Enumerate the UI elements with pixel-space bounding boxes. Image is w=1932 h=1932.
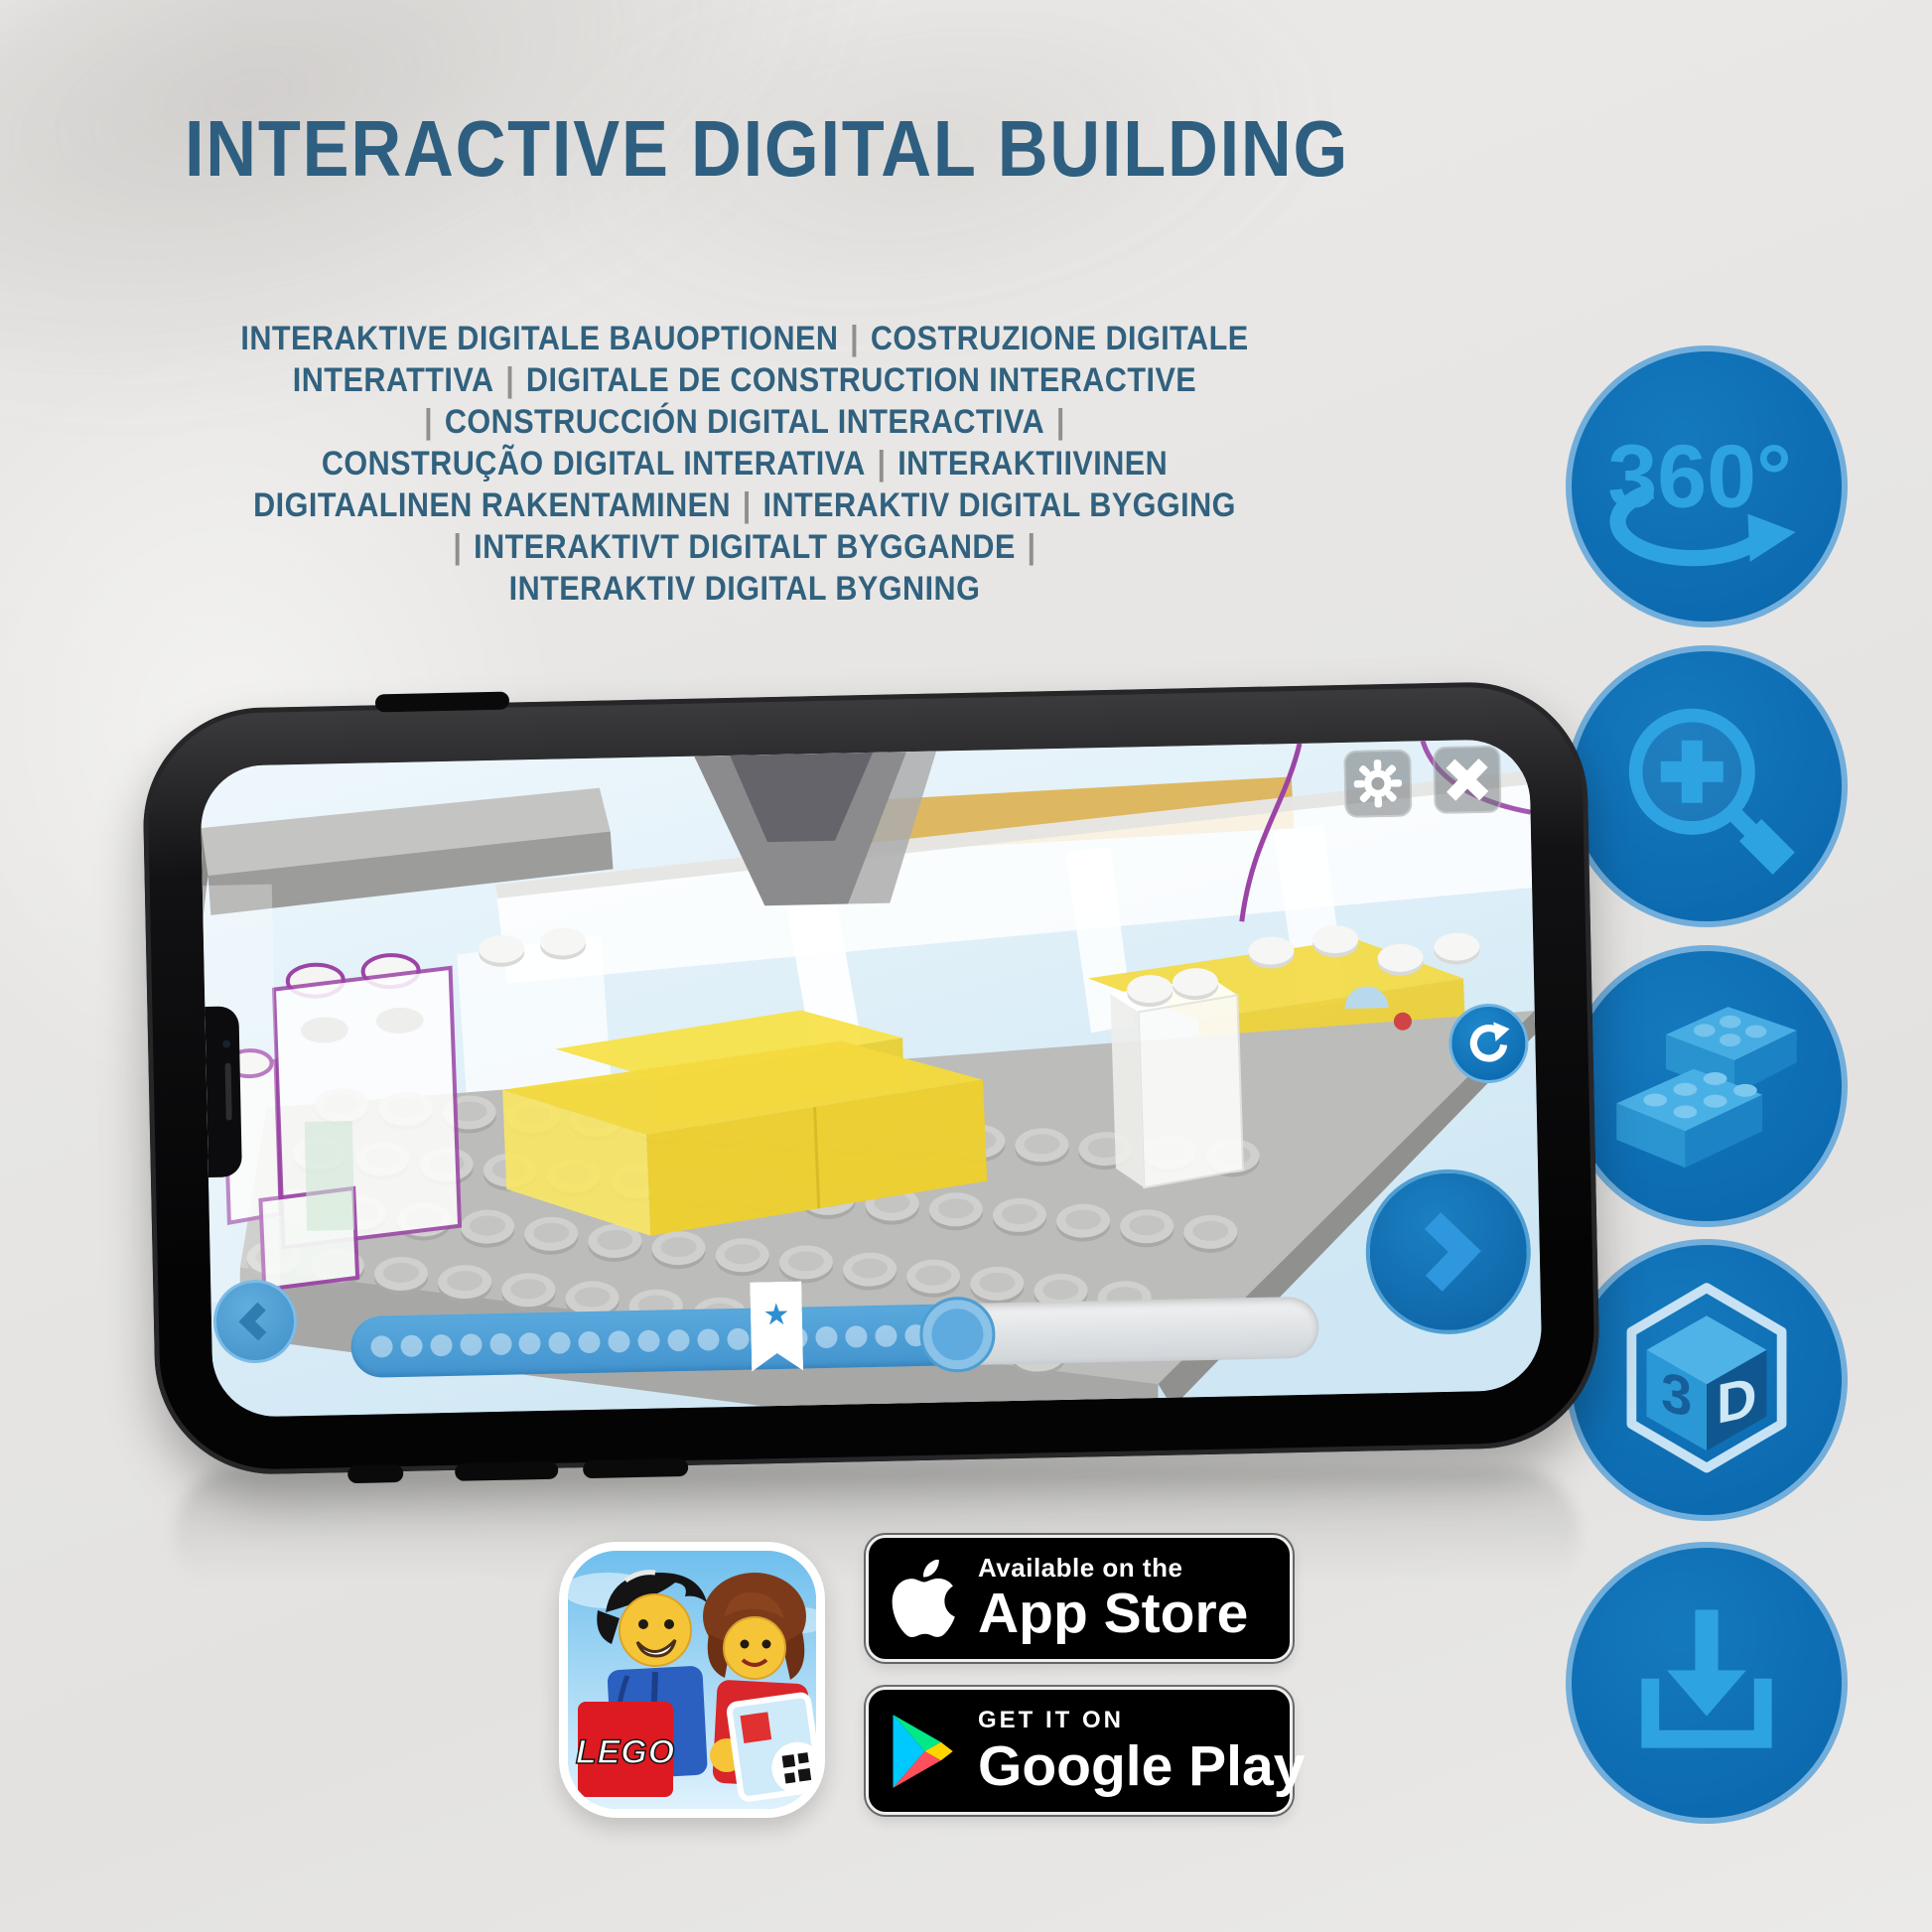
progress-dot bbox=[579, 1331, 601, 1353]
app-store-tagline: Available on the bbox=[978, 1553, 1248, 1583]
lego-logo-text: LEGO bbox=[576, 1733, 675, 1771]
page-title: INTERACTIVE DIGITAL BUILDING bbox=[92, 103, 1443, 195]
language-line: DIGITAALINEN RAKENTAMINEN|INTERAKTIV DIG… bbox=[74, 484, 1415, 526]
feature-bricks bbox=[1566, 945, 1848, 1227]
apple-icon bbox=[869, 1560, 978, 1637]
camera-dot bbox=[222, 1040, 230, 1048]
phone-volume-down-button bbox=[583, 1458, 688, 1478]
phone-volume-up-button bbox=[455, 1461, 558, 1481]
settings-button[interactable] bbox=[1343, 750, 1412, 818]
progress-dot bbox=[845, 1325, 867, 1347]
minifigure-girl bbox=[703, 1573, 816, 1802]
phone: ★ bbox=[141, 680, 1601, 1476]
progress-dot bbox=[400, 1335, 422, 1357]
360-label: 360° bbox=[1607, 428, 1792, 527]
3d-view-icon: 3 D bbox=[1599, 1273, 1814, 1487]
app-store-name: App Store bbox=[978, 1583, 1248, 1644]
language-line: CONSTRUÇÃO DIGITAL INTERATIVA|INTERAKTII… bbox=[74, 443, 1415, 484]
phone-mute-switch bbox=[347, 1464, 403, 1483]
360-rotation-icon: 360° bbox=[1592, 372, 1821, 601]
close-button[interactable] bbox=[1433, 746, 1501, 814]
language-line: INTERATTIVA|DIGITALE DE CONSTRUCTION INT… bbox=[74, 359, 1415, 401]
zoom-in-icon bbox=[1602, 682, 1811, 891]
feature-360-rotation: 360° bbox=[1566, 345, 1848, 627]
progress-dot bbox=[608, 1330, 629, 1352]
phone-screen: ★ bbox=[200, 739, 1542, 1418]
progress-dot bbox=[460, 1333, 482, 1355]
google-play-name: Google Play bbox=[978, 1735, 1305, 1797]
bricks-icon bbox=[1599, 979, 1814, 1193]
chevron-left-icon bbox=[225, 1292, 284, 1350]
page: INTERACTIVE DIGITAL BUILDING INTERAKTIVE… bbox=[0, 0, 1932, 1932]
lego-logo: LEGO bbox=[576, 1702, 675, 1797]
language-list: INTERAKTIVE DIGITALE BAUOPTIONEN|COSTRUZ… bbox=[74, 318, 1415, 610]
speaker-slit bbox=[225, 1063, 232, 1121]
language-line: |INTERAKTIVT DIGITALT BYGGANDE| bbox=[74, 526, 1415, 568]
progress-dot bbox=[637, 1330, 659, 1352]
google-play-badge[interactable]: GET IT ON Google Play bbox=[866, 1687, 1293, 1815]
feature-zoom bbox=[1566, 645, 1848, 927]
phone-notch bbox=[205, 1006, 242, 1177]
3d-left-face-label: 3 bbox=[1661, 1361, 1692, 1430]
progress-dot bbox=[875, 1325, 897, 1347]
progress-dot bbox=[727, 1328, 749, 1350]
progress-dot bbox=[430, 1334, 452, 1356]
progress-slider-handle[interactable] bbox=[919, 1296, 997, 1373]
lego-app-icon[interactable]: LEGO bbox=[559, 1542, 825, 1818]
google-play-tagline: GET IT ON bbox=[978, 1706, 1305, 1735]
progress-dot bbox=[370, 1335, 392, 1357]
progress-dot bbox=[697, 1328, 719, 1350]
language-line: INTERAKTIVE DIGITALE BAUOPTIONEN|COSTRUZ… bbox=[74, 318, 1415, 359]
google-play-icon bbox=[869, 1709, 978, 1794]
3d-right-face-label: D bbox=[1717, 1366, 1757, 1437]
lego-app-icon-art: LEGO bbox=[568, 1551, 816, 1809]
language-line: |CONSTRUCCIÓN DIGITAL INTERACTIVA| bbox=[74, 401, 1415, 443]
app-store-badge[interactable]: Available on the App Store bbox=[866, 1535, 1293, 1662]
progress-dot bbox=[667, 1329, 689, 1351]
progress-dots bbox=[370, 1323, 956, 1357]
chevron-right-icon bbox=[1393, 1196, 1504, 1308]
gear-icon bbox=[1351, 758, 1404, 810]
progress-dot bbox=[519, 1332, 541, 1354]
progress-dot bbox=[816, 1326, 838, 1348]
close-icon bbox=[1444, 757, 1490, 803]
feature-3d: 3 D bbox=[1566, 1239, 1848, 1521]
progress-dot bbox=[549, 1331, 571, 1353]
refresh-icon bbox=[1463, 1018, 1514, 1068]
feature-download bbox=[1566, 1542, 1848, 1824]
phone-power-button bbox=[375, 692, 509, 713]
progress-dot bbox=[489, 1333, 511, 1355]
language-line: INTERAKTIV DIGITAL BYGNING bbox=[74, 568, 1415, 610]
download-icon bbox=[1602, 1579, 1811, 1787]
